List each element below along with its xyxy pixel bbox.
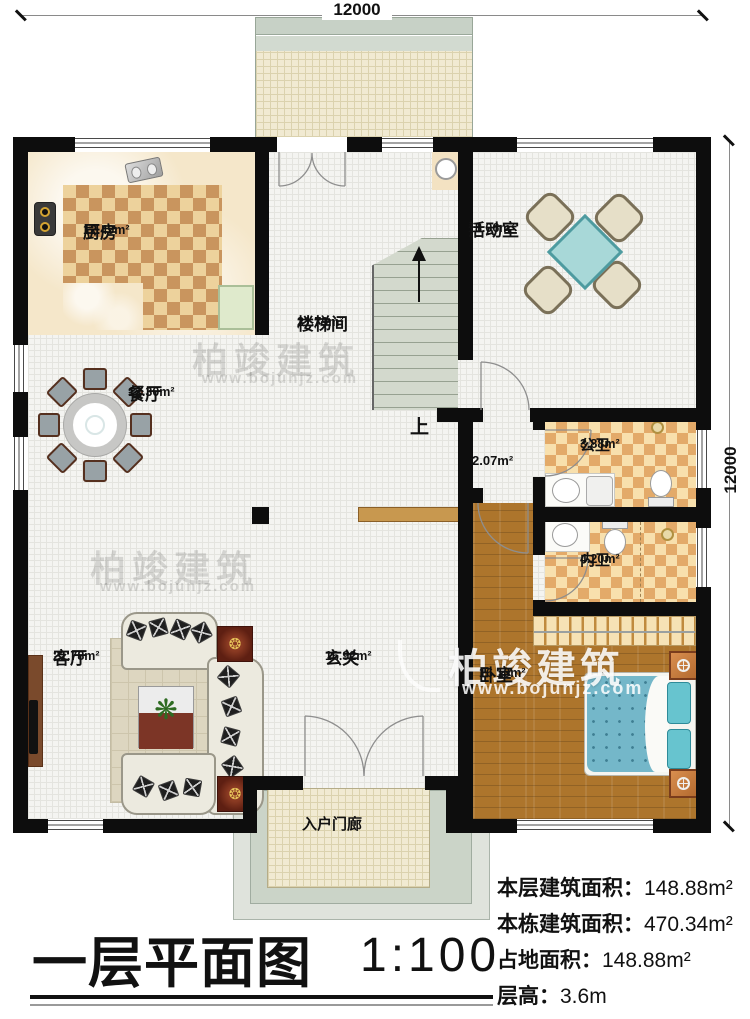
- dimension-right-label: 12000: [721, 440, 741, 500]
- dimension-top-label: 12000: [322, 0, 392, 20]
- door-swings: [0, 0, 750, 1019]
- floor-plan: 12000 12000: [0, 0, 750, 1019]
